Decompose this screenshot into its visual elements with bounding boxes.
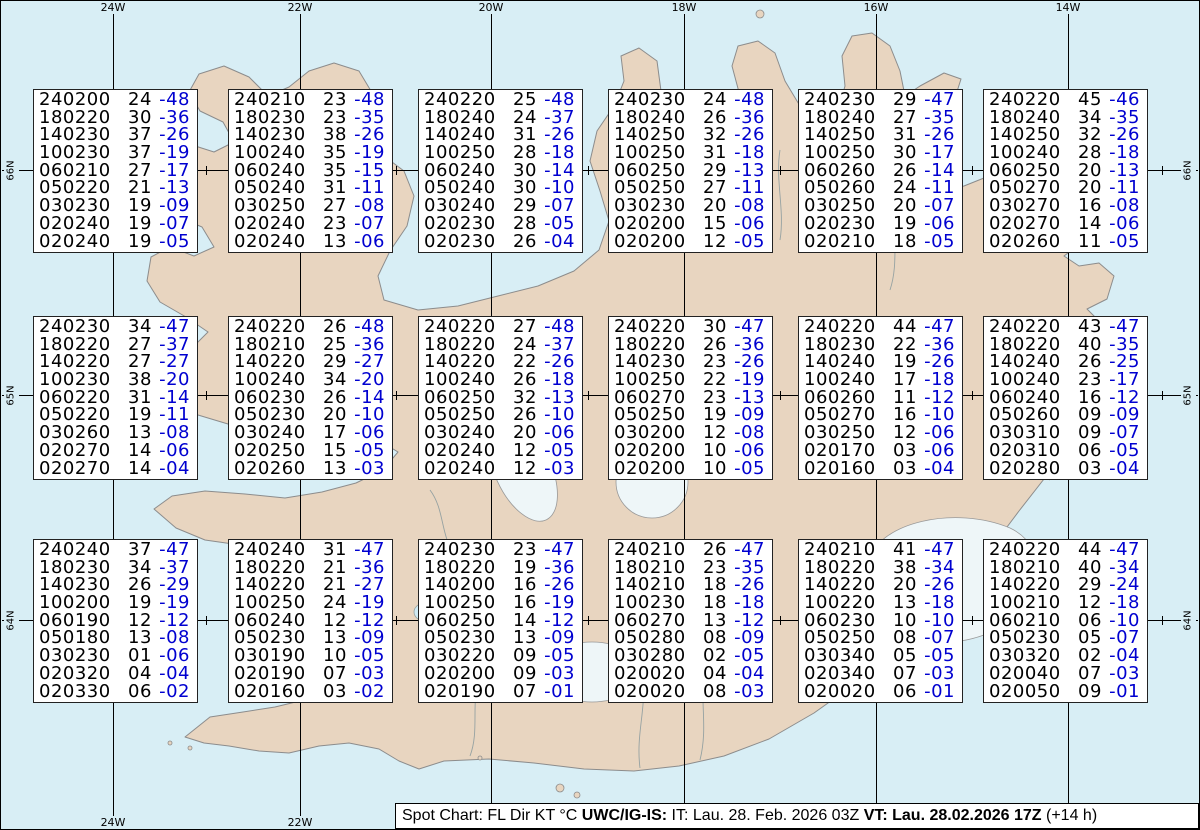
fl-dir-value: 020340 [799, 665, 893, 683]
caption-bar: Spot Chart: FL Dir KT °C UWC/IG-IS: IT: … [395, 803, 1199, 829]
temperature-value: -02 [354, 683, 392, 701]
spot-line: 02032004-04 [34, 665, 197, 683]
grid-cross [588, 616, 589, 625]
fl-dir-value: 020250 [229, 442, 323, 460]
fl-dir-value: 020240 [229, 233, 323, 251]
meridian-label-top: 16W [854, 1, 898, 14]
wind-speed-value: 03 [893, 442, 924, 460]
wind-speed-value: 14 [1078, 215, 1109, 233]
meridian-label-top: 20W [469, 1, 513, 14]
fl-dir-value: 020190 [419, 683, 513, 701]
temperature-value: -06 [924, 442, 962, 460]
temperature-value: -03 [924, 665, 962, 683]
wind-speed-value: 15 [703, 215, 734, 233]
spot-line: 02020009-03 [419, 665, 582, 683]
temperature-value: -05 [354, 442, 392, 460]
parallel-label-right: 64N [1181, 602, 1196, 638]
spot-line: 02005009-01 [984, 683, 1147, 701]
spot-line: 02004007-03 [984, 665, 1147, 683]
fl-dir-value: 020240 [34, 215, 128, 233]
wind-speed-value: 07 [513, 683, 544, 701]
temperature-value: -06 [1109, 215, 1147, 233]
temperature-value: -05 [1109, 442, 1147, 460]
grid-cross [396, 391, 397, 400]
spot-line: 02019007-03 [229, 665, 392, 683]
wind-speed-value: 09 [513, 665, 544, 683]
spot-box-64N-24W: 24024037-4718023034-3714023026-291002001… [33, 539, 198, 703]
wind-speed-value: 13 [323, 233, 354, 251]
parallel-label-text: 66N [6, 160, 17, 180]
temperature-value: -06 [734, 215, 772, 233]
fl-dir-value: 020200 [609, 233, 703, 251]
parallel-label-text: 65N [6, 385, 17, 405]
fl-dir-value: 020200 [419, 665, 513, 683]
fl-dir-value: 020200 [609, 442, 703, 460]
spot-line: 02016003-04 [799, 460, 962, 478]
spot-line: 02023026-04 [419, 233, 582, 251]
spot-line: 02025015-05 [229, 442, 392, 460]
grid-cross [1162, 391, 1163, 400]
wind-speed-value: 12 [513, 442, 544, 460]
wind-speed-value: 04 [128, 665, 159, 683]
fl-dir-value: 020170 [799, 442, 893, 460]
wind-speed-value: 10 [703, 460, 734, 478]
wind-speed-value: 11 [1078, 233, 1109, 251]
temperature-value: -03 [354, 665, 392, 683]
spot-box-65N-16W: 24022044-4718023022-3614024019-261002401… [798, 316, 963, 480]
grid-cross [1162, 616, 1163, 625]
temperature-value: -05 [1109, 233, 1147, 251]
fl-dir-value: 020270 [34, 442, 128, 460]
parallel-label-left: 66N [4, 152, 19, 188]
fl-dir-value: 020200 [609, 460, 703, 478]
spot-box-66N-24W: 24020024-4818022030-3614023037-261002303… [33, 89, 198, 253]
temperature-value: -04 [734, 665, 772, 683]
wind-speed-value: 07 [1078, 665, 1109, 683]
spot-line: 02026013-03 [229, 460, 392, 478]
fl-dir-value: 020050 [984, 683, 1078, 701]
wind-speed-value: 07 [323, 665, 354, 683]
wind-speed-value: 04 [703, 665, 734, 683]
temperature-value: -01 [544, 683, 582, 701]
meridian-label-bottom: 24W [91, 816, 135, 829]
grid-cross [396, 166, 397, 175]
spot-box-66N-18W: 24023024-4818024026-3614025032-261002503… [608, 89, 773, 253]
fl-dir-value: 020020 [609, 665, 703, 683]
spot-line: 02019007-01 [419, 683, 582, 701]
spot-line: 02024023-07 [229, 215, 392, 233]
parallel-label-text: 65N [1183, 385, 1194, 405]
fl-dir-value: 020230 [419, 215, 513, 233]
fl-dir-value: 020240 [34, 233, 128, 251]
fl-dir-value: 020020 [609, 683, 703, 701]
fl-dir-value: 020270 [984, 215, 1078, 233]
spot-line: 02002004-04 [609, 665, 772, 683]
spot-line: 02027014-06 [984, 215, 1147, 233]
temperature-value: -06 [924, 215, 962, 233]
parallel-label-text: 64N [1183, 610, 1194, 630]
fl-dir-value: 020260 [229, 460, 323, 478]
parallel-label-right: 65N [1181, 377, 1196, 413]
spot-line: 02024012-03 [419, 460, 582, 478]
spot-box-66N-22W: 24021023-4818023023-3514023038-261002403… [228, 89, 393, 253]
wind-speed-value: 06 [128, 683, 159, 701]
temperature-value: -07 [159, 215, 197, 233]
fl-dir-value: 020200 [609, 215, 703, 233]
spot-line: 02027014-04 [34, 460, 197, 478]
temperature-value: -07 [354, 215, 392, 233]
wind-speed-value: 08 [703, 683, 734, 701]
spot-box-65N-20W: 24022027-4818022024-3714022022-261002402… [418, 316, 583, 480]
temperature-value: -03 [734, 683, 772, 701]
wind-speed-value: 06 [893, 683, 924, 701]
fl-dir-value: 020210 [799, 233, 893, 251]
spot-line: 02020012-05 [609, 233, 772, 251]
wind-speed-value: 28 [513, 215, 544, 233]
fl-dir-value: 020230 [799, 215, 893, 233]
grid-cross [780, 166, 781, 175]
parallel-label-right: 66N [1181, 152, 1196, 188]
temperature-value: -03 [1109, 665, 1147, 683]
fl-dir-value: 020040 [984, 665, 1078, 683]
temperature-value: -05 [734, 460, 772, 478]
fl-dir-value: 020160 [799, 460, 893, 478]
meridian-label-top: 18W [662, 1, 706, 14]
meridian-label-top: 22W [278, 1, 322, 14]
spot-line: 02026011-05 [984, 233, 1147, 251]
spot-box-65N-14W: 24022043-4718022040-3514024026-251002402… [983, 316, 1148, 480]
wind-speed-value: 13 [323, 460, 354, 478]
spot-line: 02021018-05 [799, 233, 962, 251]
temperature-value: -05 [159, 233, 197, 251]
fl-dir-value: 020320 [34, 665, 128, 683]
fl-dir-value: 020330 [34, 683, 128, 701]
spot-line: 02020015-06 [609, 215, 772, 233]
temperature-value: -06 [734, 442, 772, 460]
fl-dir-value: 020270 [34, 460, 128, 478]
spot-box-66N-20W: 24022025-4818024024-3714024031-261002502… [418, 89, 583, 253]
temperature-value: -04 [159, 665, 197, 683]
spot-line: 02027014-06 [34, 442, 197, 460]
spot-box-64N-14W: 24022044-4718021040-3414022029-241002101… [983, 539, 1148, 703]
spot-line: 02024013-06 [229, 233, 392, 251]
grid-cross [396, 616, 397, 625]
grid-cross [588, 391, 589, 400]
spot-line: 02020010-06 [609, 442, 772, 460]
wind-speed-value: 03 [1078, 460, 1109, 478]
parallel-label-left: 64N [4, 602, 19, 638]
temperature-value: -02 [159, 683, 197, 701]
temperature-value: -06 [159, 442, 197, 460]
wind-speed-value: 07 [893, 665, 924, 683]
spot-line: 02002008-03 [609, 683, 772, 701]
grid-cross [206, 391, 207, 400]
wind-speed-value: 19 [128, 233, 159, 251]
spot-line: 02020010-05 [609, 460, 772, 478]
island-grimsey [756, 10, 764, 18]
wind-speed-value: 23 [323, 215, 354, 233]
temperature-value: -05 [544, 442, 582, 460]
wind-speed-value: 19 [893, 215, 924, 233]
fl-dir-value: 020160 [229, 683, 323, 701]
temperature-value: -01 [1109, 683, 1147, 701]
spot-box-66N-16W: 24023029-4718024027-3514025031-261002503… [798, 89, 963, 253]
temperature-value: -04 [924, 460, 962, 478]
spot-box-64N-22W: 24024031-4718022021-3614022021-271002502… [228, 539, 393, 703]
wind-speed-value: 03 [323, 683, 354, 701]
wind-speed-value: 12 [703, 233, 734, 251]
caption-chart-type: Spot Chart: FL Dir KT °C [402, 807, 582, 825]
spot-line: 02024019-05 [34, 233, 197, 251]
spot-line: 02031006-05 [984, 442, 1147, 460]
fl-dir-value: 020020 [799, 683, 893, 701]
temperature-value: -01 [924, 683, 962, 701]
spot-line: 02034007-03 [799, 665, 962, 683]
wind-speed-value: 18 [893, 233, 924, 251]
temperature-value: -03 [544, 460, 582, 478]
spot-box-65N-22W: 24022026-4818021025-3614022029-271002403… [228, 316, 393, 480]
spot-line: 02028003-04 [984, 460, 1147, 478]
wind-speed-value: 12 [513, 460, 544, 478]
fl-dir-value: 020240 [419, 442, 513, 460]
wind-speed-value: 26 [513, 233, 544, 251]
temperature-value: -05 [924, 233, 962, 251]
spot-line: 02016003-02 [229, 683, 392, 701]
caption-valid-time: VT: Lau. 28.02.2026 17Z [864, 807, 1042, 825]
spot-line: 02002006-01 [799, 683, 962, 701]
wind-speed-value: 10 [703, 442, 734, 460]
fl-dir-value: 020240 [419, 460, 513, 478]
caption-lead-time: (+14 h) [1042, 807, 1098, 825]
temperature-value: -05 [544, 215, 582, 233]
grid-cross [972, 166, 973, 175]
temperature-value: -06 [354, 233, 392, 251]
meridian-label-top: 14W [1046, 1, 1090, 14]
wind-speed-value: 03 [893, 460, 924, 478]
wind-speed-value: 15 [323, 442, 354, 460]
spot-line: 02033006-02 [34, 683, 197, 701]
spot-box-64N-18W: 24021026-4718021023-3514021018-261002301… [608, 539, 773, 703]
spot-line: 02017003-06 [799, 442, 962, 460]
wind-speed-value: 14 [128, 460, 159, 478]
spot-line: 02024012-05 [419, 442, 582, 460]
spot-line: 02023019-06 [799, 215, 962, 233]
spot-line: 02024019-07 [34, 215, 197, 233]
parallel-label-text: 64N [6, 610, 17, 630]
grid-cross [972, 391, 973, 400]
grid-cross [780, 391, 781, 400]
spot-box-66N-14W: 24022045-4618024034-3514025032-261002402… [983, 89, 1148, 253]
spot-box-65N-18W: 24022030-4718022026-3614023023-261002502… [608, 316, 773, 480]
temperature-value: -05 [734, 233, 772, 251]
fl-dir-value: 020230 [419, 233, 513, 251]
spot-box-64N-20W: 24023023-4718022019-3614020016-261002501… [418, 539, 583, 703]
wind-speed-value: 09 [1078, 683, 1109, 701]
wind-speed-value: 19 [128, 215, 159, 233]
temperature-value: -04 [1109, 460, 1147, 478]
temperature-value: -04 [159, 460, 197, 478]
wind-speed-value: 06 [1078, 442, 1109, 460]
spot-box-65N-24W: 24023034-4718022027-3714022027-271002303… [33, 316, 198, 480]
meridian-label-bottom: 22W [278, 816, 322, 829]
grid-cross [1162, 166, 1163, 175]
temperature-value: -03 [544, 665, 582, 683]
grid-cross [780, 616, 781, 625]
island-vestmannaeyjar [556, 784, 564, 792]
temperature-value: -04 [544, 233, 582, 251]
fl-dir-value: 020190 [229, 665, 323, 683]
meridian-label-top: 24W [91, 1, 135, 14]
caption-issue-time: IT: Lau. 28. Feb. 2026 03Z [667, 807, 864, 825]
parallel-label-left: 65N [4, 377, 19, 413]
grid-cross [588, 166, 589, 175]
fl-dir-value: 020280 [984, 460, 1078, 478]
grid-cross [972, 616, 973, 625]
caption-center-id: UWC/IG-IS: [582, 807, 667, 825]
grid-cross [206, 166, 207, 175]
spot-box-64N-16W: 24021041-4718022038-3414022020-261002201… [798, 539, 963, 703]
fl-dir-value: 020260 [984, 233, 1078, 251]
spot-line: 02023028-05 [419, 215, 582, 233]
temperature-value: -03 [354, 460, 392, 478]
fl-dir-value: 020310 [984, 442, 1078, 460]
wind-speed-value: 14 [128, 442, 159, 460]
grid-cross [206, 616, 207, 625]
parallel-label-text: 66N [1183, 160, 1194, 180]
fl-dir-value: 020240 [229, 215, 323, 233]
